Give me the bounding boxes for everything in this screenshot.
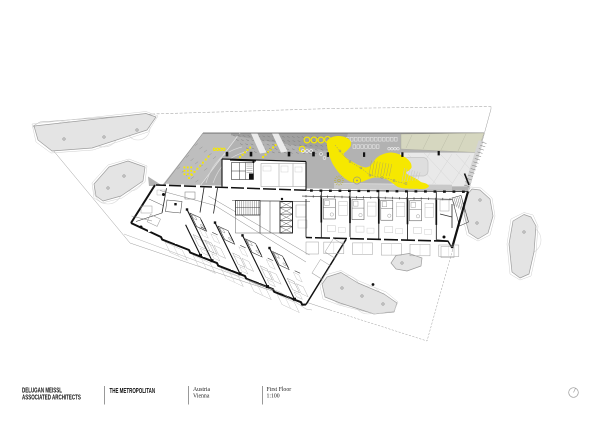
svg-text:ASSOCIATED ARCHITECTS: ASSOCIATED ARCHITECTS [22,395,81,402]
svg-text:First Floor: First Floor [267,387,292,393]
svg-text:1:100: 1:100 [267,394,280,400]
svg-text:Austria: Austria [193,387,210,393]
svg-text:THE METROPOLITAN: THE METROPOLITAN [110,388,156,395]
svg-text:Vienna: Vienna [193,394,210,400]
